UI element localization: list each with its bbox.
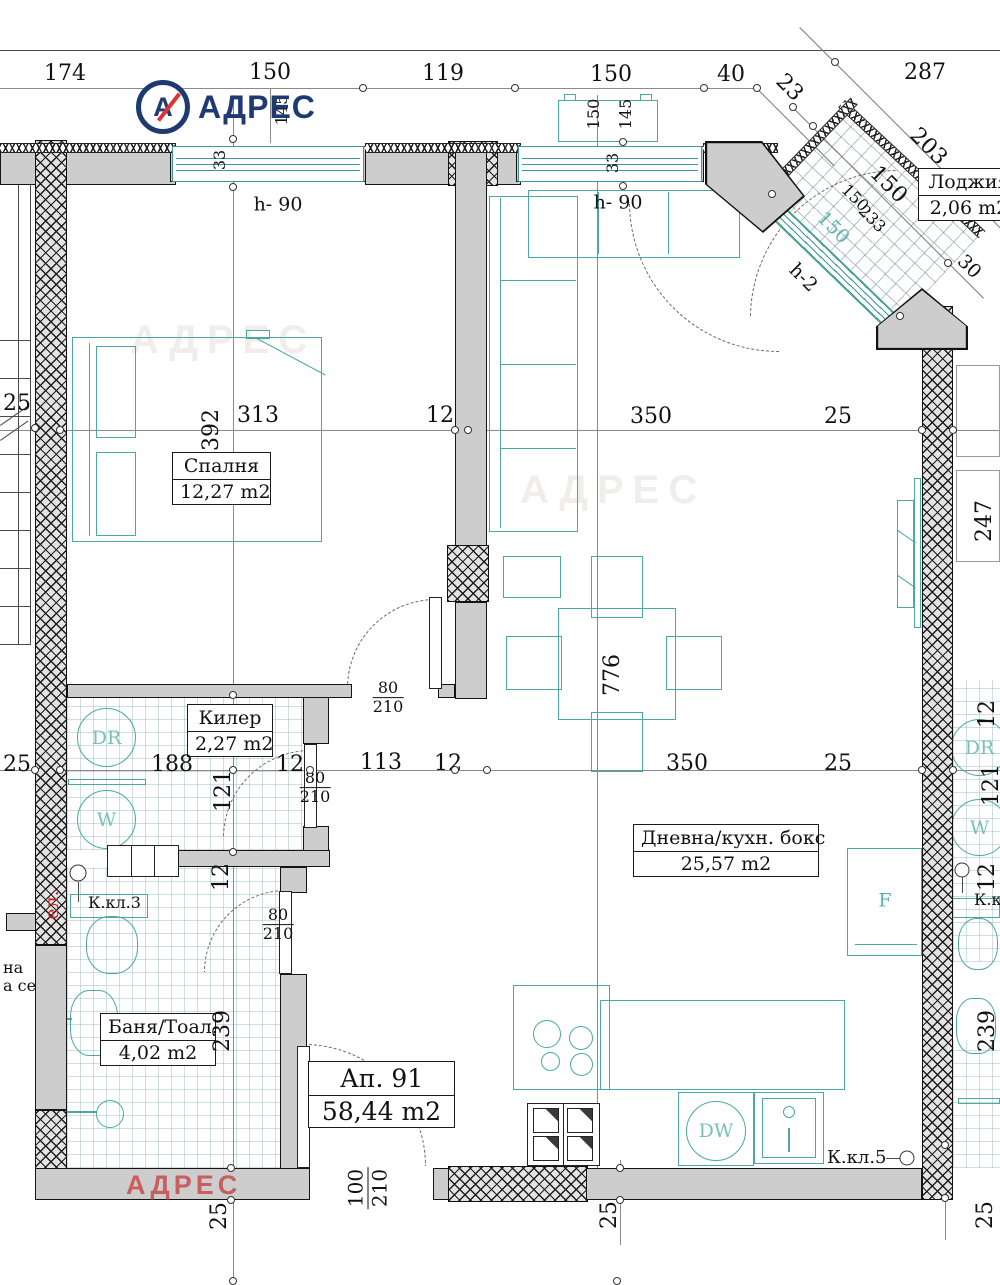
wall-left <box>35 1110 67 1170</box>
adres-logo: А АДРЕС <box>136 80 316 134</box>
winB-thickness: 33 <box>605 153 621 173</box>
tick <box>941 1194 949 1202</box>
chair-east <box>666 636 722 690</box>
closet-shelf <box>68 779 146 785</box>
sink-drain <box>788 1128 790 1152</box>
window-bedroom <box>172 146 364 182</box>
neighbor-toilet-bowl <box>958 918 998 970</box>
winB-height: 145 <box>618 99 634 130</box>
dim-25-bottom: 25 <box>975 1201 997 1229</box>
edge-text: а се <box>3 976 36 995</box>
tick <box>944 259 952 267</box>
dishwasher-label: DW <box>699 1120 734 1142</box>
bed-headboard <box>89 343 90 536</box>
dim-188: 188 <box>151 754 193 776</box>
neighbor-washer-label: W <box>970 817 990 839</box>
tick <box>616 1164 624 1172</box>
dim-25-bottom: 25 <box>209 1202 231 1230</box>
dim-313: 313 <box>237 405 279 427</box>
stair-step <box>0 530 30 531</box>
dim-25: 25 <box>824 753 852 775</box>
drain-pipe <box>67 1111 97 1113</box>
tick <box>451 426 459 434</box>
stair-step <box>0 340 30 341</box>
dim-12-right: 12 <box>977 700 999 728</box>
tick <box>483 766 491 774</box>
washer-label: W <box>97 809 117 831</box>
tick <box>789 103 797 111</box>
bed-tab <box>246 330 270 339</box>
tick <box>306 766 314 774</box>
tick <box>809 122 817 130</box>
wall-bedroom-south <box>67 684 352 698</box>
wall-left <box>35 140 67 945</box>
dim-12: 12 <box>426 405 454 427</box>
dim-350: 350 <box>630 406 672 428</box>
tick <box>616 1196 624 1204</box>
pillow <box>96 452 136 536</box>
loggia-label: Лоджия 2,06 m2 <box>918 168 1000 221</box>
burner-icon <box>569 1026 593 1050</box>
dim-174: 174 <box>44 63 86 85</box>
closet-cabinet <box>107 845 179 877</box>
burner-icon <box>533 1020 561 1048</box>
tick <box>918 426 926 434</box>
entry-door-size: 100210 <box>345 1167 392 1209</box>
border-line <box>0 50 1000 51</box>
dim-40: 40 <box>717 64 745 86</box>
ac-foot <box>640 94 652 101</box>
closet-name: Килер <box>188 705 272 732</box>
burner-icon <box>541 1052 560 1071</box>
kkl-right-arrow <box>962 877 963 893</box>
kitchen-counter <box>600 1000 845 1090</box>
tick <box>918 766 926 774</box>
dim-25: 25 <box>824 406 852 428</box>
dim-23: 23 <box>771 70 806 105</box>
tick <box>511 84 519 92</box>
wall-closet <box>303 697 329 744</box>
ac-unit <box>558 100 658 142</box>
tick <box>451 766 459 774</box>
adres-logo-icon: А <box>136 80 190 134</box>
sofa-cushion <box>668 192 669 254</box>
bath-label: Баня/Тоал. 4,02 m2 <box>100 1013 216 1066</box>
living-area: 25,57 m2 <box>634 852 818 876</box>
neighbor-dryer-label: DR <box>965 737 995 759</box>
wall-insulation <box>365 143 521 153</box>
tick <box>56 766 64 774</box>
kkl-right-label: К.кл. <box>974 890 1000 909</box>
tick <box>700 84 708 92</box>
sofa-back <box>500 198 501 528</box>
tick <box>613 1277 621 1285</box>
tick <box>949 766 957 774</box>
stair-step <box>0 416 30 417</box>
bedroom-label: Спалня 12,27 m2 <box>172 452 271 505</box>
dim-239: 239 <box>212 1010 234 1052</box>
tick <box>896 312 904 320</box>
adres-watermark: АДРЕС <box>126 1170 241 1201</box>
tick <box>229 183 237 191</box>
coffee-table <box>503 556 561 598</box>
stair-step <box>0 378 30 379</box>
loggia-area: 2,06 m2 <box>919 196 1000 220</box>
fridge-label: F <box>878 892 891 911</box>
bedroom-area: 12,27 m2 <box>173 480 270 504</box>
wall-closet-south <box>178 850 330 867</box>
dim-12-lower: 12 <box>211 863 233 891</box>
washer-icon: W <box>77 790 136 849</box>
tick <box>31 424 39 432</box>
bath-area: 4,02 m2 <box>101 1041 215 1065</box>
tick <box>941 1141 949 1149</box>
kkl5-circle <box>900 1151 915 1166</box>
stair-step <box>0 568 30 569</box>
dim-776: 776 <box>602 654 624 696</box>
dim-113: 113 <box>360 752 402 774</box>
living-name: Дневна/кухн. бокс <box>634 825 818 852</box>
wall-bottom <box>448 1166 588 1202</box>
wall-pier <box>303 826 329 852</box>
wall-right <box>922 306 953 1200</box>
floor-plan: АДРЕС АДРЕС <box>0 0 1000 1285</box>
tv-stand <box>897 500 914 608</box>
wall-center <box>455 602 487 699</box>
dim-150b: 150 <box>590 64 632 86</box>
bath-door-size: 80210 <box>263 906 294 944</box>
neighbor-washer-icon: W <box>951 799 1000 856</box>
kkl3-circle <box>70 865 87 882</box>
dim-287: 287 <box>904 62 946 84</box>
dryer-icon: DR <box>77 708 136 767</box>
tick <box>56 426 64 434</box>
bath-name: Баня/Тоал. <box>101 1014 215 1041</box>
bedroom-name: Спалня <box>173 453 270 480</box>
wall-stub <box>6 913 36 931</box>
tick <box>359 84 367 92</box>
tick <box>619 182 627 190</box>
closet-area: 2,27 m2 <box>188 732 272 756</box>
edge-text: на <box>3 958 23 977</box>
tv-panel <box>914 478 921 628</box>
dim-12-lower-right: 12 <box>977 863 999 891</box>
kkl5-label: К.кл.5 <box>827 1147 887 1168</box>
burner-icon <box>570 1053 593 1076</box>
sofa-cushion <box>500 448 576 449</box>
tick <box>229 691 237 699</box>
tick <box>768 190 776 198</box>
tick <box>619 138 627 146</box>
cabinet-door <box>567 1108 593 1133</box>
stair-step <box>0 606 30 607</box>
dim-25-bottom: 25 <box>599 1201 621 1229</box>
bedroom-door-size: 80210 <box>373 679 404 717</box>
closet-label: Килер 2,27 m2 <box>187 704 273 757</box>
dim-25: 25 <box>3 393 31 415</box>
wall-insulation <box>0 143 176 153</box>
tick <box>229 135 237 143</box>
cabinet-door <box>533 1108 559 1133</box>
chair-north <box>591 556 643 618</box>
stair-step <box>0 492 30 493</box>
tick <box>949 426 957 434</box>
kkl3-label: К.кл.3 <box>88 893 141 912</box>
tick <box>229 1277 237 1285</box>
sofa-cushion <box>500 280 576 281</box>
wall-left <box>35 945 67 1110</box>
closet-door-size: 80210 <box>300 769 331 807</box>
neighbor-floor-2 <box>953 1040 1000 1168</box>
tick <box>464 426 472 434</box>
wall-bottom <box>586 1168 922 1200</box>
winA-sill: h- 90 <box>254 196 303 215</box>
winA-thickness: 33 <box>212 150 228 170</box>
tick <box>229 766 237 774</box>
cabinet-door <box>567 1136 593 1161</box>
wall-bath <box>280 867 307 893</box>
electrical-note: ел. <box>41 890 63 919</box>
winB-sill: h- 90 <box>594 194 643 213</box>
pillow <box>96 346 136 438</box>
dim-121: 121 <box>213 770 235 812</box>
adres-logo-text: АДРЕС <box>198 89 316 126</box>
drain-icon <box>96 1100 124 1128</box>
winB-width: 150 <box>586 99 602 130</box>
wall-column <box>447 545 489 602</box>
dim-119: 119 <box>422 63 464 85</box>
fridge-line <box>855 944 917 945</box>
tick <box>227 1196 235 1204</box>
toilet-bowl <box>86 916 138 974</box>
stair-step <box>0 454 30 455</box>
sofa-cushion <box>500 364 576 365</box>
wall-center <box>455 143 487 547</box>
kkl-right-circle <box>955 863 970 878</box>
apartment-area: 58,44 m2 <box>309 1096 454 1127</box>
tick <box>229 848 237 856</box>
cabinet-door <box>533 1136 559 1161</box>
wall <box>0 152 176 185</box>
dim-239-right: 239 <box>977 1010 999 1052</box>
dim-247: 247 <box>974 500 996 542</box>
dim-121-right: 121 <box>981 764 1000 806</box>
ac-foot <box>564 94 576 101</box>
loggia-name: Лоджия <box>919 169 1000 196</box>
chair-west <box>506 636 562 690</box>
dim-line-top <box>0 88 757 89</box>
neighbor-shelf <box>958 1098 1000 1104</box>
dishwasher-icon: DW <box>686 1101 746 1161</box>
neighbor-furniture <box>956 365 1000 457</box>
living-label: Дневна/кухн. бокс 25,57 m2 <box>633 824 819 877</box>
dryer-label: DR <box>92 727 122 749</box>
faucet-icon <box>783 1106 795 1118</box>
apartment-label: Ап. 91 58,44 m2 <box>308 1061 455 1128</box>
bedroom-door-leaf <box>429 597 442 689</box>
dim-25: 25 <box>3 754 31 776</box>
stove <box>513 985 610 1090</box>
stair-step <box>0 644 30 645</box>
chair-south <box>591 712 643 772</box>
tick <box>753 84 761 92</box>
tick <box>831 58 839 66</box>
apartment-number: Ап. 91 <box>309 1062 454 1096</box>
tick <box>31 766 39 774</box>
dim-350: 350 <box>666 753 708 775</box>
dim-392: 392 <box>201 409 223 451</box>
tick <box>227 1164 235 1172</box>
